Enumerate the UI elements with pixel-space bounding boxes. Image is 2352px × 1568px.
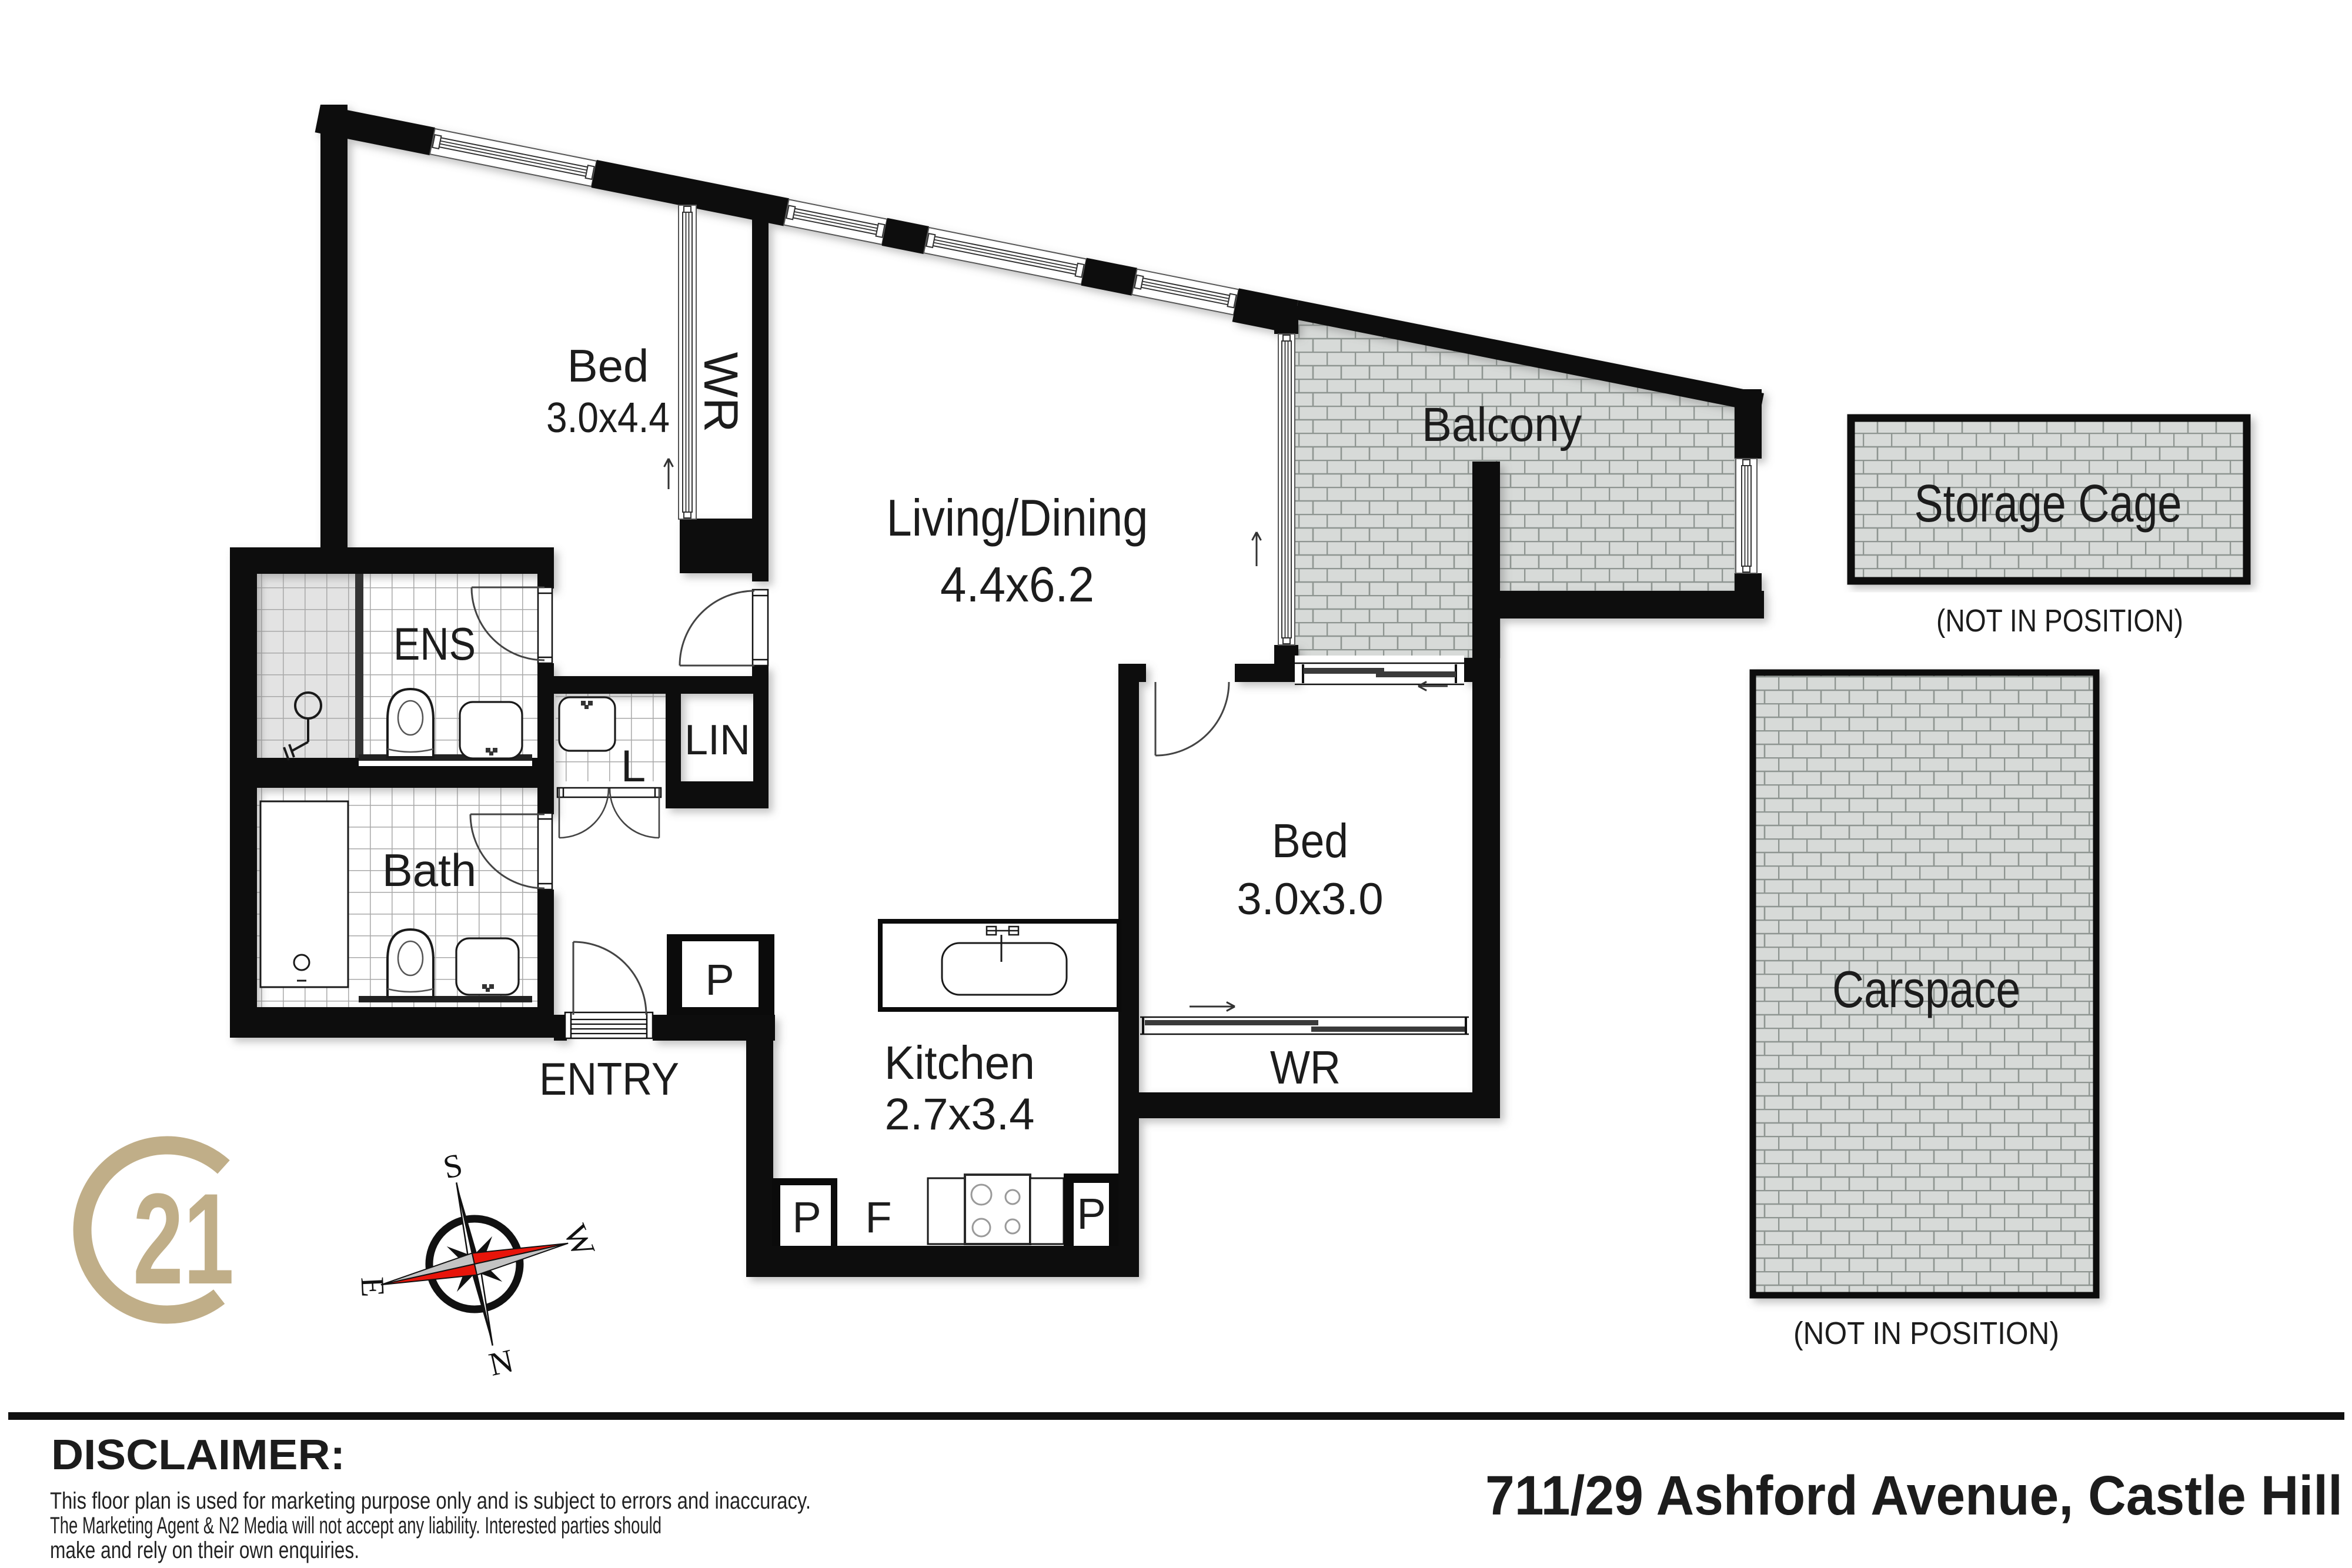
svg-text:4.4x6.2: 4.4x6.2 [940,557,1094,612]
svg-text:LIN: LIN [684,717,750,764]
svg-text:21: 21 [133,1166,234,1311]
svg-text:Bed: Bed [567,340,649,392]
svg-text:WR: WR [694,352,747,433]
svg-text:ENS: ENS [393,618,476,670]
svg-text:L: L [621,741,646,791]
svg-text:2.7x3.4: 2.7x3.4 [885,1089,1035,1139]
svg-text:711/29 Ashford Avenue, Castle: 711/29 Ashford Avenue, Castle Hill [1485,1465,2343,1527]
svg-text:P: P [792,1193,821,1242]
svg-text:F: F [865,1193,891,1242]
svg-text:(NOT IN POSITION): (NOT IN POSITION) [1936,603,2183,638]
svg-text:WR: WR [1270,1041,1341,1094]
svg-text:This floor plan is used for ma: This floor plan is used for marketing pu… [50,1488,811,1514]
svg-text:DISCLAIMER:: DISCLAIMER: [51,1432,345,1479]
svg-text:Balcony: Balcony [1422,398,1582,452]
svg-text:Living/Dining: Living/Dining [887,489,1148,547]
svg-text:P: P [1077,1189,1105,1238]
svg-text:Storage Cage: Storage Cage [1915,474,2182,533]
svg-text:Bath: Bath [382,844,476,896]
svg-text:P: P [705,955,734,1004]
svg-text:E: E [354,1276,391,1298]
svg-text:The Marketing Agent & N2 Media: The Marketing Agent & N2 Media will not … [50,1513,661,1539]
svg-text:(NOT IN POSITION): (NOT IN POSITION) [1793,1316,2059,1351]
svg-text:3.0x3.0: 3.0x3.0 [1237,874,1383,924]
svg-text:Kitchen: Kitchen [884,1037,1035,1089]
svg-text:make and rely on their own enq: make and rely on their own enquiries. [50,1537,359,1563]
svg-text:Carspace: Carspace [1832,960,2020,1018]
svg-text:ENTRY: ENTRY [539,1053,679,1105]
svg-text:Bed: Bed [1272,814,1348,868]
svg-text:3.0x4.4: 3.0x4.4 [546,394,670,442]
